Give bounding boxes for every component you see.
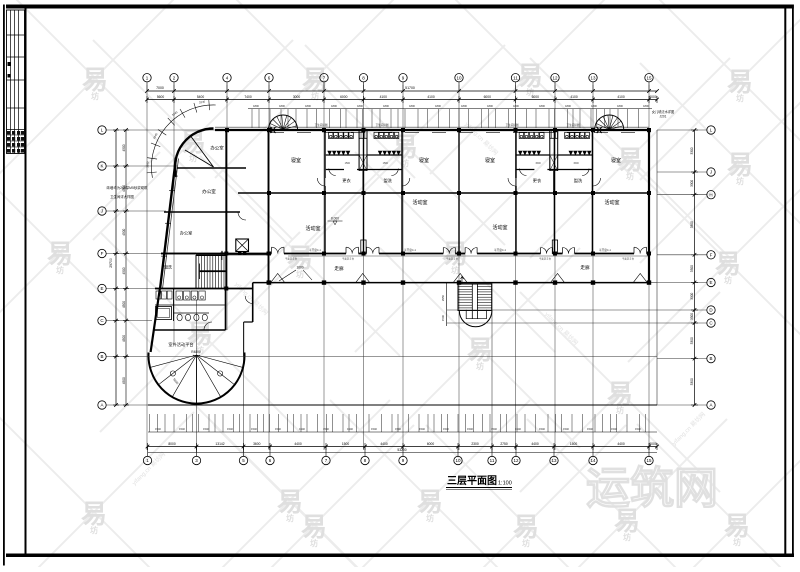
svg-text:寝室: 寝室 [419, 157, 429, 164]
svg-text:13142: 13142 [215, 442, 224, 446]
svg-text:13: 13 [551, 458, 557, 463]
svg-text:29700: 29700 [109, 258, 113, 268]
svg-text:坊: 坊 [91, 91, 99, 101]
svg-text:三层平面图: 三层平面图 [447, 475, 497, 487]
svg-text:11: 11 [490, 458, 495, 463]
svg-text:办公室: 办公室 [202, 188, 216, 195]
svg-text:4500: 4500 [122, 228, 126, 235]
svg-text:易: 易 [727, 150, 753, 180]
svg-text:1500: 1500 [441, 314, 445, 321]
svg-text:1540: 1540 [251, 427, 257, 431]
svg-text:坊: 坊 [310, 538, 318, 548]
svg-text:女儿墙泛水详图: 女儿墙泛水详图 [652, 109, 674, 114]
svg-text:J: J [101, 209, 103, 214]
svg-text:B: B [100, 354, 103, 359]
svg-text:1800: 1800 [617, 104, 623, 108]
svg-text:卫生间详大样图: 卫生间详大样图 [110, 194, 134, 199]
svg-text:4500: 4500 [122, 377, 126, 384]
svg-text:1540: 1540 [179, 427, 185, 431]
svg-text:1800: 1800 [253, 104, 259, 108]
svg-text:坊: 坊 [476, 361, 484, 371]
svg-text:易: 易 [301, 512, 327, 542]
svg-text:运筑网: 运筑网 [586, 464, 718, 513]
svg-text:10: 10 [455, 458, 461, 463]
svg-text:3240: 3240 [145, 161, 149, 168]
svg-text:4500: 4500 [122, 335, 126, 342]
svg-text:1800: 1800 [539, 104, 545, 108]
svg-text:E: E [100, 286, 103, 291]
svg-text:6000: 6000 [340, 95, 348, 99]
svg-text:12: 12 [552, 75, 558, 80]
svg-text:3600: 3600 [253, 442, 261, 446]
svg-text:坊: 坊 [426, 513, 434, 523]
svg-text:1:100: 1:100 [498, 481, 512, 487]
svg-text:1540: 1540 [323, 427, 329, 431]
svg-text:1500: 1500 [342, 442, 350, 446]
svg-text:3300: 3300 [690, 378, 694, 385]
svg-text:易: 易 [82, 65, 108, 95]
svg-text:A: A [100, 403, 103, 408]
svg-text:4100: 4100 [380, 95, 388, 99]
svg-text:1800: 1800 [357, 104, 363, 108]
svg-text:4400: 4400 [294, 442, 302, 446]
svg-text:1540: 1540 [419, 427, 425, 431]
svg-text:坊: 坊 [451, 265, 459, 275]
svg-text:K: K [100, 164, 103, 169]
svg-text:易: 易 [81, 499, 107, 529]
svg-text:平面洗手台: 平面洗手台 [342, 257, 355, 261]
svg-text:B: B [709, 356, 712, 361]
svg-text:1800: 1800 [461, 104, 467, 108]
svg-text:寝室: 寝室 [291, 157, 301, 164]
svg-text:1800: 1800 [435, 104, 441, 108]
svg-text:51700: 51700 [405, 86, 415, 90]
svg-text:2950: 2950 [441, 294, 445, 301]
svg-text:1500: 1500 [535, 162, 541, 165]
svg-text:坊: 坊 [286, 513, 294, 523]
svg-text:1540: 1540 [347, 427, 353, 431]
svg-text:活动室: 活动室 [492, 224, 507, 231]
svg-text:易: 易 [467, 335, 493, 365]
svg-text:活动室: 活动室 [305, 225, 320, 232]
svg-text:寝室: 寝室 [485, 157, 495, 164]
svg-text:11: 11 [513, 75, 518, 80]
svg-text:F: F [101, 251, 104, 256]
svg-text:3300: 3300 [690, 292, 694, 299]
svg-text:易: 易 [724, 511, 750, 541]
svg-text:平面洗手台: 平面洗手台 [285, 257, 298, 261]
svg-text:1500: 1500 [345, 162, 351, 165]
svg-text:1800: 1800 [591, 104, 597, 108]
svg-text:易: 易 [277, 487, 303, 517]
svg-text:8.000: 8.000 [331, 217, 339, 221]
svg-text:平面洗手台: 平面洗手台 [539, 257, 552, 261]
svg-text:办公室: 办公室 [180, 230, 193, 237]
svg-text:4400: 4400 [380, 442, 388, 446]
svg-text:1540: 1540 [203, 427, 209, 431]
svg-text:易: 易 [513, 512, 539, 542]
svg-text:A: A [709, 403, 712, 408]
svg-text:坊: 坊 [522, 538, 530, 548]
svg-text:1800: 1800 [487, 104, 493, 108]
svg-text:坊: 坊 [736, 93, 744, 103]
svg-text:6000: 6000 [532, 95, 540, 99]
svg-text:E: E [709, 280, 712, 285]
svg-text:1540: 1540 [539, 427, 545, 431]
svg-text:6000: 6000 [484, 95, 492, 99]
svg-text:坊: 坊 [296, 269, 304, 279]
svg-text:1800: 1800 [305, 104, 311, 108]
svg-text:1800: 1800 [565, 104, 571, 108]
svg-text:4500: 4500 [122, 144, 126, 151]
svg-text:1540: 1540 [563, 427, 569, 431]
svg-text:卫生间详图: 卫生间详图 [376, 123, 389, 127]
svg-text:15: 15 [646, 458, 652, 463]
svg-text:R4800: R4800 [191, 350, 201, 354]
svg-text:1540: 1540 [467, 427, 473, 431]
svg-text:1540: 1540 [299, 427, 305, 431]
svg-text:1540: 1540 [635, 427, 641, 431]
svg-text:2300: 2300 [471, 442, 479, 446]
svg-text:12: 12 [513, 458, 519, 463]
svg-text:1540: 1540 [227, 427, 233, 431]
svg-text:4400: 4400 [531, 442, 539, 446]
svg-text:1500: 1500 [573, 162, 579, 165]
svg-text:1540: 1540 [515, 427, 521, 431]
svg-text:平面洗手台: 平面洗手台 [446, 257, 459, 261]
svg-text:坊: 坊 [90, 525, 98, 535]
svg-text:4400: 4400 [617, 442, 625, 446]
svg-text:坊: 坊 [724, 275, 732, 285]
svg-text:1800: 1800 [409, 104, 415, 108]
svg-text:盥洗: 盥洗 [384, 177, 393, 184]
svg-text:砖墙均为240厚M5砂浆砌筑: 砖墙均为240厚M5砂浆砌筑 [107, 185, 148, 190]
svg-text:平面洗手台: 平面洗手台 [622, 257, 635, 261]
svg-text:3000: 3000 [293, 95, 301, 99]
svg-text:1500: 1500 [383, 162, 389, 165]
svg-text:J: J [710, 170, 712, 175]
svg-text:卫生间详图: 卫生间详图 [315, 123, 328, 127]
svg-text:1540: 1540 [491, 427, 497, 431]
svg-text:走廊: 走廊 [580, 264, 590, 271]
svg-text:3300: 3300 [690, 147, 694, 154]
svg-text:1800: 1800 [513, 104, 519, 108]
svg-text:3300: 3300 [690, 313, 694, 320]
svg-text:走廊: 走廊 [334, 265, 344, 272]
svg-text:活动室: 活动室 [412, 199, 427, 206]
svg-text:盥洗: 盥洗 [574, 177, 583, 184]
svg-text:易: 易 [47, 239, 73, 269]
svg-text:坊: 坊 [736, 176, 744, 186]
svg-text:易: 易 [392, 132, 418, 162]
svg-text:寝室: 寝室 [611, 157, 621, 164]
svg-text:活动室: 活动室 [604, 199, 619, 206]
svg-text:14: 14 [590, 458, 596, 463]
svg-text:1540: 1540 [155, 427, 161, 431]
svg-text:4100: 4100 [617, 95, 625, 99]
svg-text:13: 13 [590, 75, 596, 80]
svg-text:53200: 53200 [397, 448, 406, 452]
svg-text:4500: 4500 [122, 267, 126, 274]
svg-text:1500: 1500 [570, 442, 578, 446]
svg-text:1800: 1800 [279, 104, 285, 108]
svg-text:4100: 4100 [570, 95, 578, 99]
svg-text:坊: 坊 [56, 265, 64, 275]
svg-text:室外活动平台: 室外活动平台 [168, 341, 193, 348]
svg-text:更衣: 更衣 [533, 177, 542, 184]
svg-text:卫生间详图: 卫生间详图 [567, 123, 580, 127]
svg-text:F: F [710, 252, 713, 257]
svg-text:J201: J201 [660, 115, 667, 119]
svg-text:平开窗C-1: 平开窗C-1 [599, 248, 612, 252]
svg-text:坊: 坊 [733, 537, 741, 547]
svg-text:易: 易 [607, 379, 633, 409]
svg-text:1000: 1000 [296, 266, 303, 270]
svg-text:易: 易 [727, 67, 753, 97]
svg-text:2750: 2750 [500, 442, 508, 446]
svg-text:盥洗: 盥洗 [164, 264, 172, 270]
svg-text:1800: 1800 [331, 104, 337, 108]
svg-text:平开窗C-1: 平开窗C-1 [404, 248, 417, 252]
svg-text:6000: 6000 [427, 442, 435, 446]
svg-text:更衣: 更衣 [342, 177, 351, 184]
svg-text:卫生间详图: 卫生间详图 [506, 123, 519, 127]
svg-text:3300: 3300 [690, 180, 694, 187]
svg-text:坊: 坊 [626, 171, 634, 181]
svg-text:易: 易 [517, 61, 543, 91]
svg-text:坊: 坊 [616, 405, 624, 415]
svg-text:坊: 坊 [623, 532, 631, 542]
svg-text:易: 易 [715, 249, 741, 279]
svg-text:10: 10 [456, 75, 462, 80]
svg-text:H: H [709, 192, 712, 197]
svg-text:1540: 1540 [587, 427, 593, 431]
svg-text:4500: 4500 [122, 301, 126, 308]
svg-text:易: 易 [417, 487, 443, 517]
svg-text:1540: 1540 [371, 427, 377, 431]
svg-text:1800: 1800 [383, 104, 389, 108]
svg-text:办公室: 办公室 [210, 145, 224, 152]
svg-text:平开窗C-1: 平开窗C-1 [309, 248, 322, 252]
svg-text:1540: 1540 [275, 427, 281, 431]
svg-text:8000: 8000 [168, 442, 176, 446]
svg-text:15: 15 [646, 75, 652, 80]
svg-text:1540: 1540 [611, 427, 617, 431]
svg-text:3300: 3300 [690, 221, 694, 228]
svg-text:5400: 5400 [197, 95, 205, 99]
svg-text:1800: 1800 [643, 104, 649, 108]
svg-text:7000: 7000 [156, 86, 164, 90]
svg-text:7400: 7400 [244, 95, 252, 99]
svg-text:3300: 3300 [690, 265, 694, 272]
svg-text:平开窗C-1: 平开窗C-1 [494, 248, 507, 252]
svg-text:1540: 1540 [443, 427, 449, 431]
svg-text:1540: 1540 [395, 427, 401, 431]
svg-text:4100: 4100 [427, 95, 435, 99]
svg-text:3300: 3300 [690, 337, 694, 344]
svg-text:5600: 5600 [157, 95, 165, 99]
